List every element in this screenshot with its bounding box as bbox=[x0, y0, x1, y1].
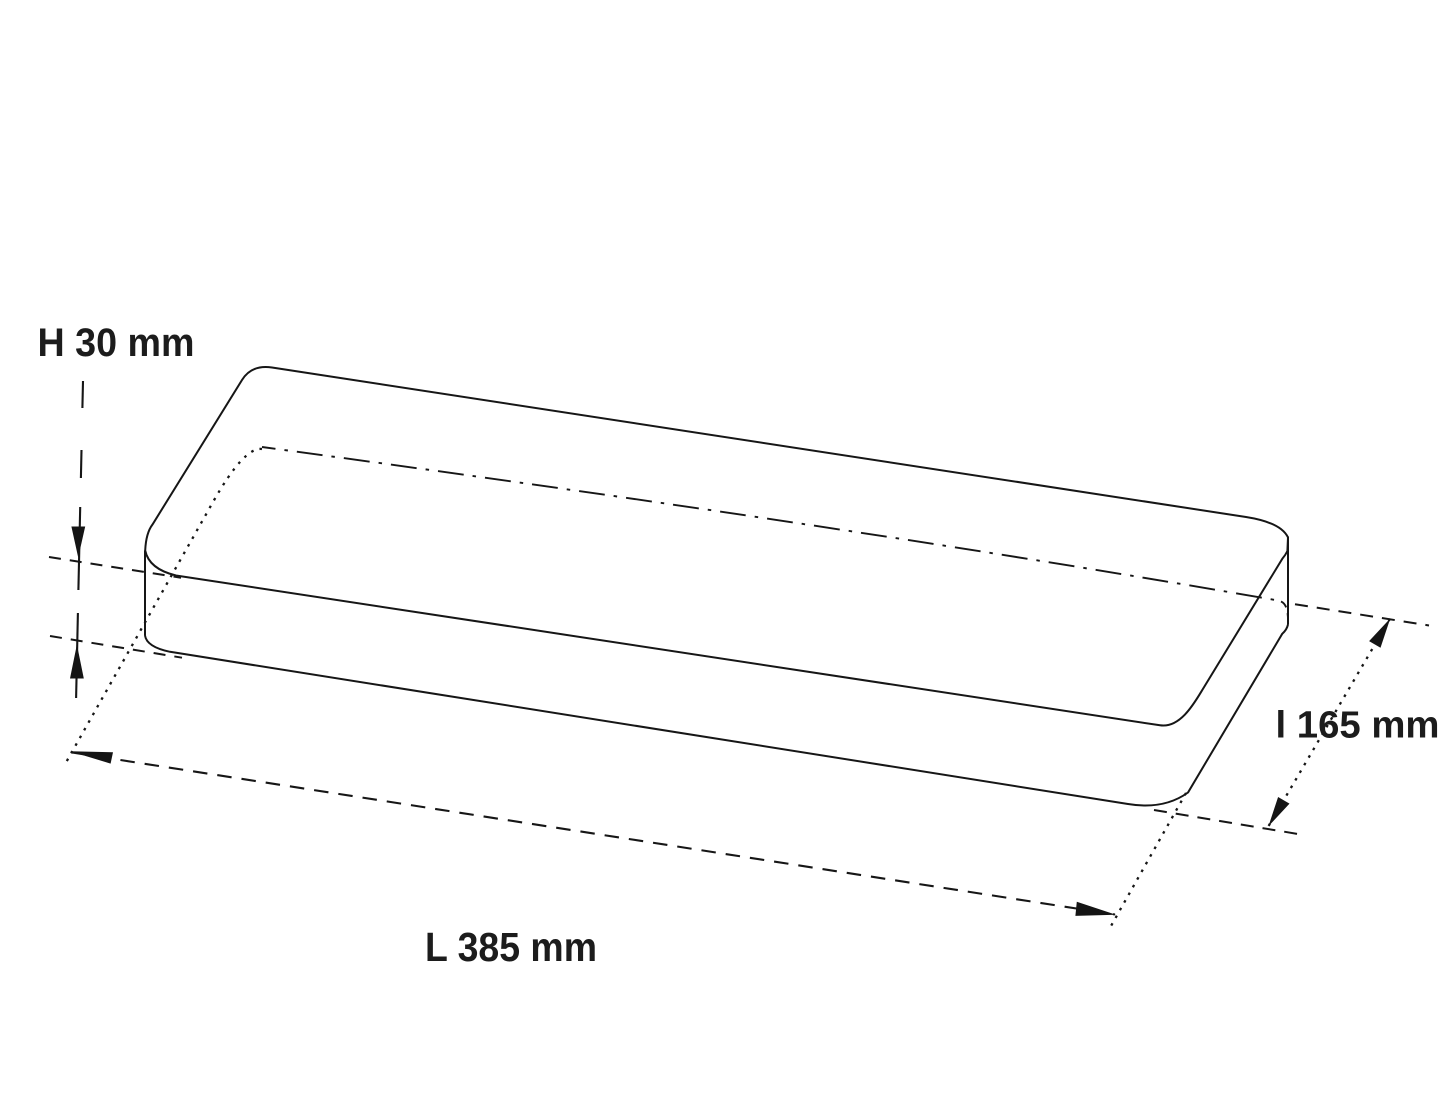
svg-text:L 385 mm: L 385 mm bbox=[425, 924, 597, 970]
svg-text:l 165 mm: l 165 mm bbox=[1276, 705, 1440, 747]
svg-text:H 30 mm: H 30 mm bbox=[38, 321, 195, 365]
